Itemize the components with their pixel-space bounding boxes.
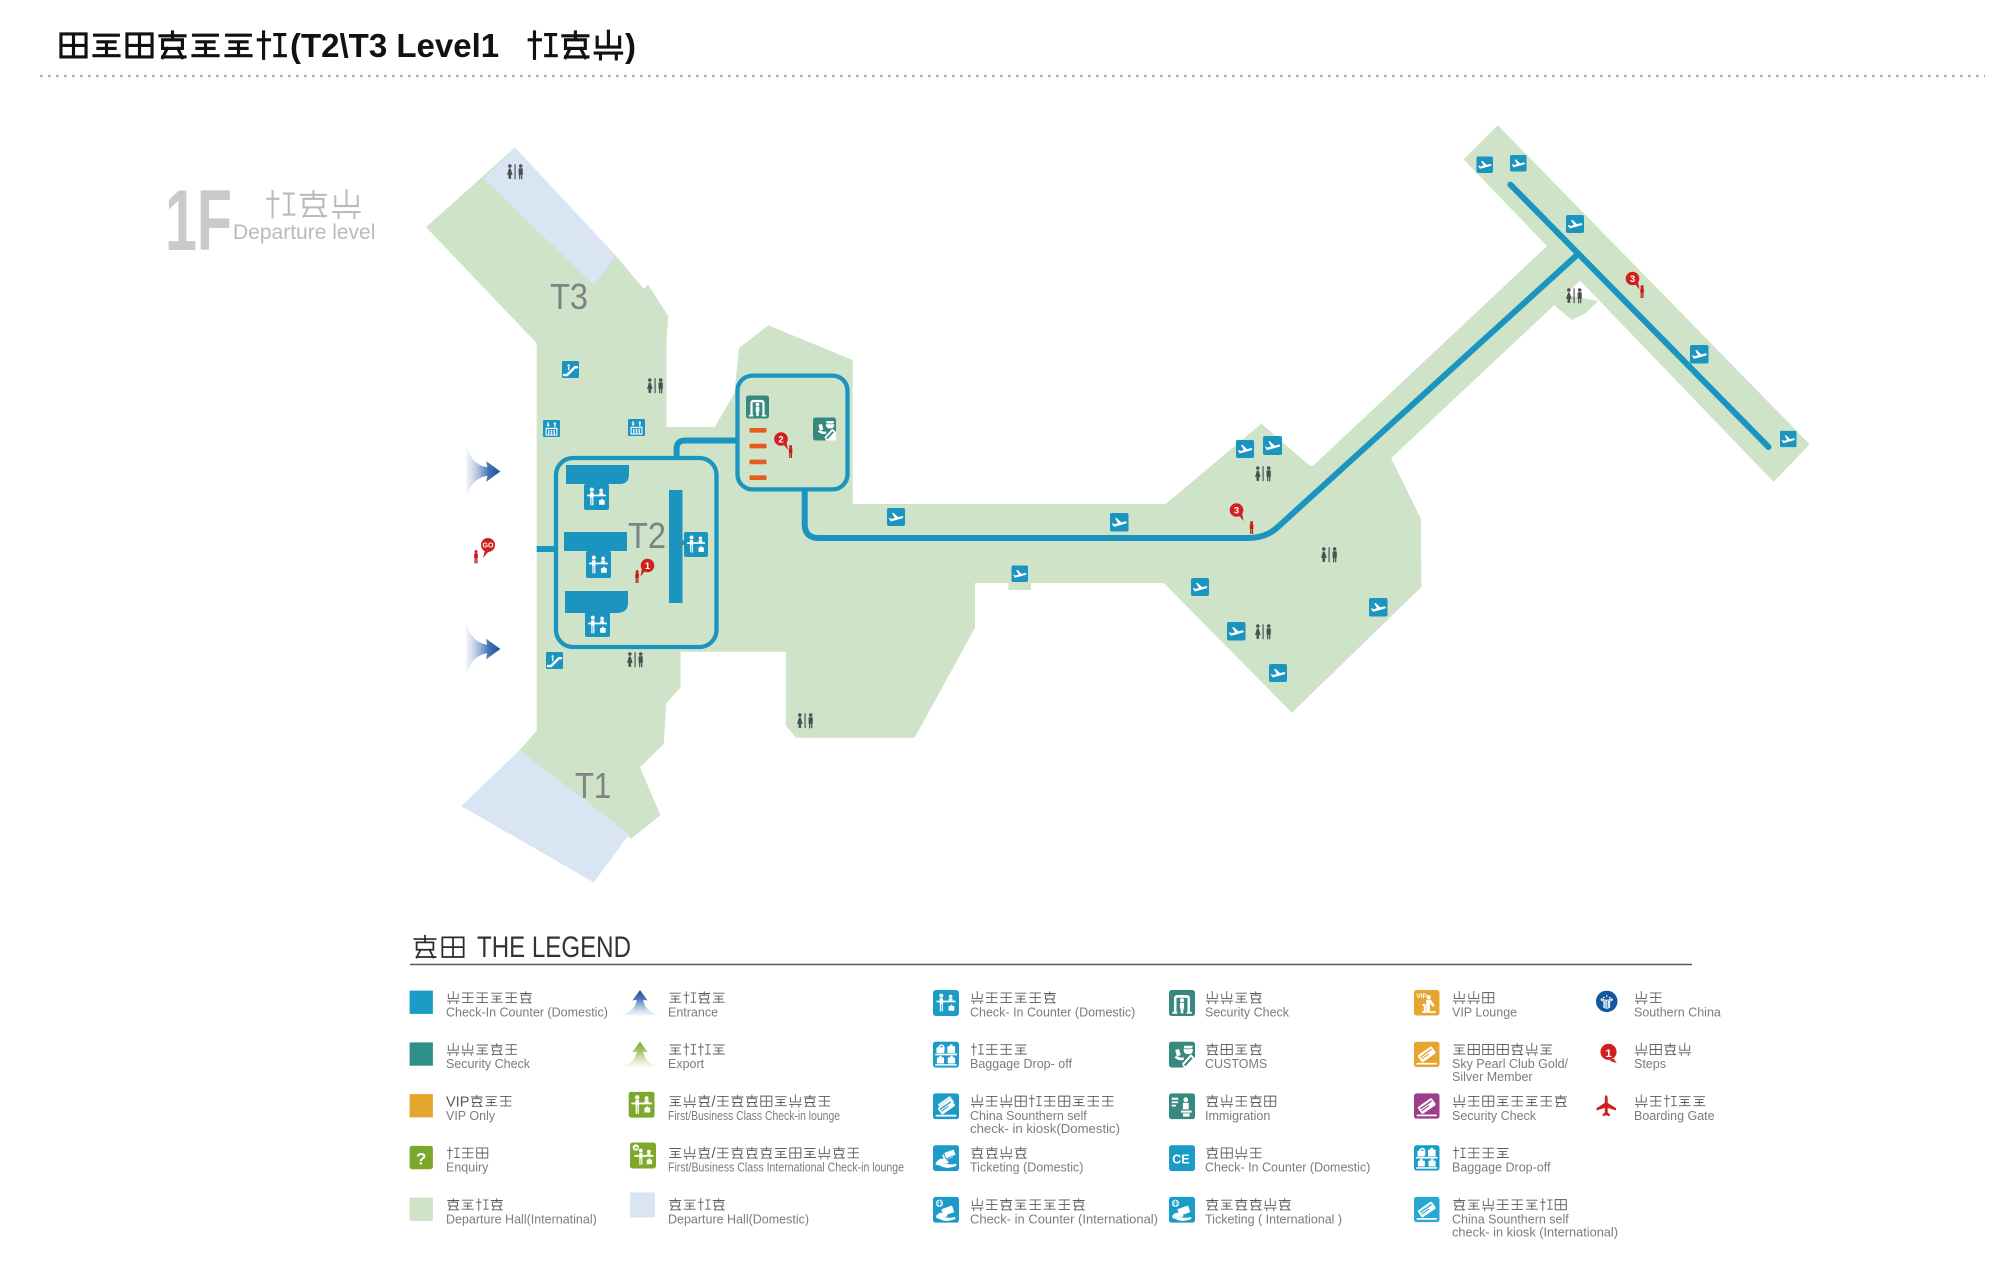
svg-text:Ticketing ( International ): Ticketing ( International ) [1205, 1212, 1342, 1226]
svg-text:First/Business Class Internati: First/Business Class International Check… [668, 1161, 904, 1175]
svg-text:Sky Pearl Club Gold/: Sky Pearl Club Gold/ [1452, 1057, 1569, 1071]
svg-text:VIP Only: VIP Only [446, 1109, 496, 1123]
svg-text:Security Check: Security Check [446, 1057, 531, 1071]
svg-text:Enquiry: Enquiry [446, 1161, 489, 1175]
svg-text:China Sounthern self: China Sounthern self [1452, 1212, 1569, 1226]
svg-text:1: 1 [645, 561, 651, 572]
svg-text:Departure Hall(Domestic): Departure Hall(Domestic) [668, 1212, 809, 1226]
svg-text:GO: GO [483, 543, 494, 550]
svg-text:Baggage Drop-off: Baggage Drop-off [1452, 1161, 1551, 1175]
svg-text:Security Check: Security Check [1205, 1005, 1290, 1019]
svg-text:THE LEGEND: THE LEGEND [477, 931, 631, 964]
svg-text:Departure Hall(Internatinal): Departure Hall(Internatinal) [446, 1212, 597, 1226]
svg-text:Boarding Gate: Boarding Gate [1634, 1109, 1715, 1123]
svg-text:Immigration: Immigration [1205, 1109, 1270, 1123]
svg-text:check- in kiosk (International: check- in kiosk (International) [1452, 1225, 1618, 1239]
svg-text:3: 3 [1234, 505, 1239, 516]
svg-text:Baggage Drop- off: Baggage Drop- off [970, 1057, 1072, 1071]
svg-text:T2: T2 [628, 515, 666, 556]
svg-text:Check- In Counter (Domestic): Check- In Counter (Domestic) [1205, 1161, 1370, 1175]
svg-text:China Sounthern self: China Sounthern self [970, 1109, 1087, 1123]
svg-text:Check- in Counter (Internation: Check- in Counter (International) [970, 1212, 1158, 1226]
svg-text:(T2\T3 Level1: (T2\T3 Level1 [290, 27, 499, 64]
svg-text:Check- In Counter (Domestic): Check- In Counter (Domestic) [970, 1005, 1135, 1019]
svg-text:?: ? [416, 1150, 426, 1169]
svg-text:1F: 1F [165, 173, 232, 269]
svg-text:Entrance: Entrance [668, 1005, 718, 1019]
svg-text:First/Business Class Check-in: First/Business Class Check-in lounge [668, 1109, 840, 1123]
svg-text:): ) [625, 27, 636, 64]
svg-text:Ticketing (Domestic): Ticketing (Domestic) [970, 1161, 1083, 1175]
svg-text:Steps: Steps [1634, 1057, 1666, 1071]
svg-text:T3: T3 [550, 276, 588, 317]
svg-text:VIP Lounge: VIP Lounge [1452, 1005, 1517, 1019]
svg-text:Export: Export [668, 1057, 705, 1071]
svg-text:Check-In Counter (Domestic): Check-In Counter (Domestic) [446, 1005, 608, 1019]
svg-text:2: 2 [778, 434, 783, 445]
svg-text:CUSTOMS: CUSTOMS [1205, 1057, 1267, 1071]
svg-text:3: 3 [1630, 274, 1635, 285]
svg-text:Southern China: Southern China [1634, 1005, 1721, 1019]
svg-text:T1: T1 [575, 765, 611, 806]
svg-text:Departure level: Departure level [233, 221, 375, 244]
svg-text:VIP: VIP [446, 1094, 469, 1110]
svg-text:Silver Member: Silver Member [1452, 1070, 1533, 1084]
svg-text:Security Check: Security Check [1452, 1109, 1537, 1123]
svg-text:check- in kiosk(Domestic): check- in kiosk(Domestic) [970, 1122, 1120, 1136]
